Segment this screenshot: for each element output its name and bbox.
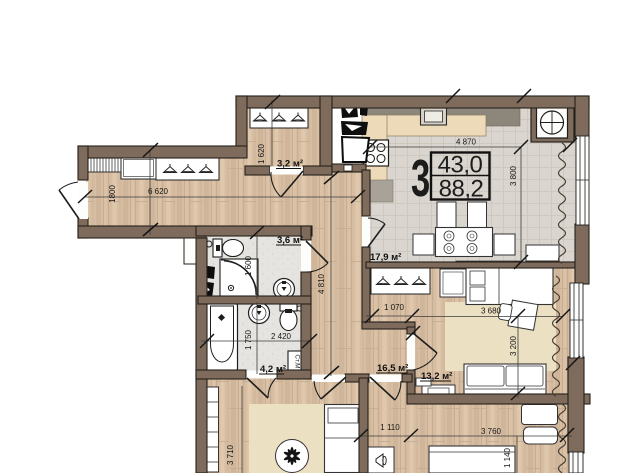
svg-text:3 680: 3 680 [481,307,502,316]
svg-text:3,6 м²: 3,6 м² [277,235,303,246]
svg-text:88,2: 88,2 [439,176,484,203]
svg-text:2 420: 2 420 [271,332,292,341]
svg-text:3,2 м²: 3,2 м² [277,159,303,170]
svg-text:17,9 м²: 17,9 м² [370,252,401,263]
svg-text:1 140: 1 140 [503,447,512,468]
svg-text:3 760: 3 760 [481,427,502,436]
svg-text:4 870: 4 870 [456,138,477,147]
svg-text:1 620: 1 620 [257,143,266,164]
svg-text:1 070: 1 070 [384,303,405,312]
svg-text:6 620: 6 620 [148,187,169,196]
svg-text:3 710: 3 710 [226,444,235,465]
svg-text:Ст.М: Ст.М [293,354,300,368]
svg-text:4,2 м²: 4,2 м² [260,364,286,375]
svg-text:1 110: 1 110 [380,423,400,432]
svg-text:1800: 1800 [108,185,117,203]
svg-text:3 200: 3 200 [509,335,518,356]
svg-text:3: 3 [411,150,430,208]
svg-text:4 810: 4 810 [317,273,326,294]
svg-text:1 600: 1 600 [244,255,253,276]
svg-text:1 750: 1 750 [244,329,253,350]
svg-text:16,5 м²: 16,5 м² [377,363,408,374]
svg-text:13,2 м²: 13,2 м² [421,371,452,382]
svg-text:3 800: 3 800 [509,165,518,186]
svg-text:43,0: 43,0 [438,152,483,179]
